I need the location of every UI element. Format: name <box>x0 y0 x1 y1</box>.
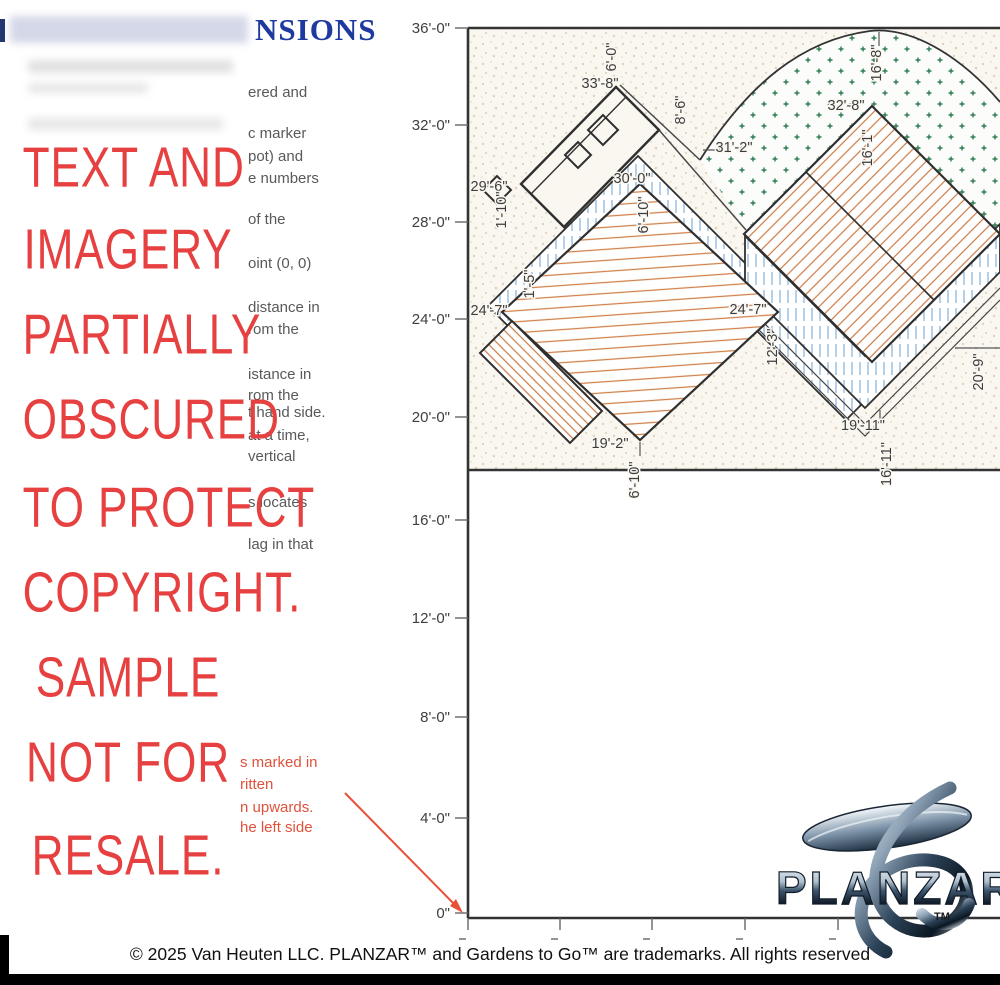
sample-plan-page: NSIONS ered and c marker pot) and e numb… <box>0 0 1000 985</box>
dimension-label: 30'-0" <box>614 171 651 187</box>
dimension-label: 1'-5" <box>522 270 538 299</box>
dimension-label: 16'-11" <box>879 442 895 486</box>
y-axis-tick-label: 28'-0" <box>412 214 450 231</box>
frame-bottom-bar <box>0 974 1000 985</box>
dimension-label: 33'-8" <box>582 76 619 92</box>
dimension-label: 19'-11" <box>841 418 885 434</box>
y-axis-tick-label: 36'-0" <box>412 20 450 37</box>
dimension-label: 16'-1" <box>860 130 876 167</box>
dimension-label: 20'-9" <box>971 354 987 391</box>
y-axis: 36'-0" 32'-0" 28'-0" 24'-0" 20'-0" 16'-0… <box>412 20 468 922</box>
y-axis-tick-label: 24'-0" <box>412 311 450 328</box>
dimension-label: 1'-10" <box>494 192 510 229</box>
y-axis-tick-label: 12'-0" <box>412 610 450 627</box>
dimension-label: 24'-7" <box>730 302 767 318</box>
dimension-label: 16'-8" <box>869 45 885 82</box>
dimension-label: 31'-2" <box>716 140 753 156</box>
logo-tm-mark: TM <box>934 911 950 923</box>
dimension-label: 6'-0" <box>604 43 620 72</box>
dimension-label: 8'-6" <box>673 96 689 125</box>
planzar-logo: PLANZAR TM <box>776 788 1000 952</box>
copyright-line: © 2025 Van Heuten LLC. PLANZAR™ and Gard… <box>0 944 1000 965</box>
dimension-label: 6'-10" <box>636 197 652 234</box>
y-axis-tick-label: 4'-0" <box>420 810 450 827</box>
dimension-label: 12'-3" <box>765 329 781 366</box>
y-axis-tick-label: 20'-0" <box>412 409 450 426</box>
dimension-label: 32'-8" <box>828 98 865 114</box>
dimension-label: 19'-2" <box>592 436 629 452</box>
y-axis-tick-label: 0" <box>436 905 450 922</box>
dimension-label: 6'-10" <box>627 462 643 499</box>
y-axis-tick-label: 32'-0" <box>412 117 450 134</box>
site-plan: 36'-0" 32'-0" 28'-0" 24'-0" 20'-0" 16'-0… <box>0 0 1000 985</box>
y-axis-tick-label: 16'-0" <box>412 512 450 529</box>
y-axis-tick-label: 8'-0" <box>420 709 450 726</box>
dimension-label: 24'-7" <box>471 303 508 319</box>
